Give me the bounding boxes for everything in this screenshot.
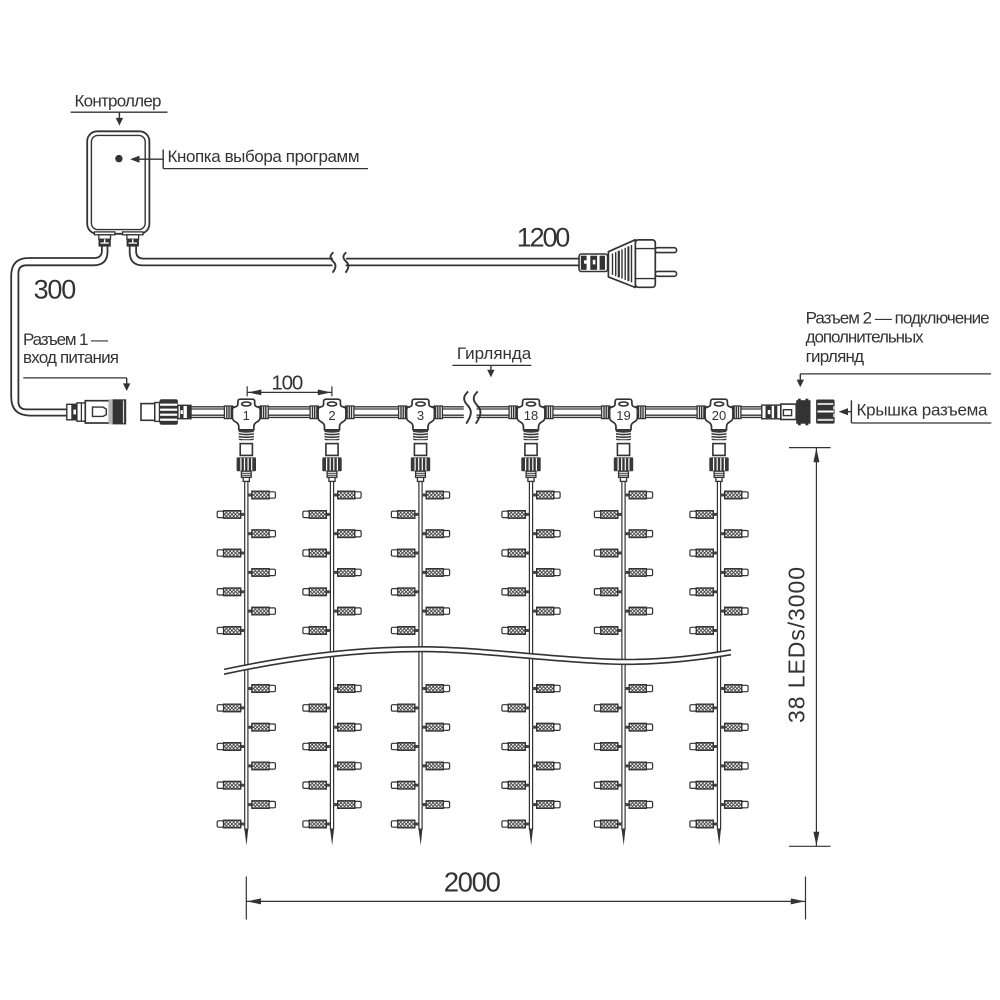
svg-text:гирлянд: гирлянд <box>806 347 865 366</box>
svg-text:Крышка разъема: Крышка разъема <box>857 400 989 419</box>
svg-text:38 LEDs/3000: 38 LEDs/3000 <box>784 567 810 723</box>
svg-text:Контроллер: Контроллер <box>75 91 162 110</box>
svg-text:вход питания: вход питания <box>23 348 119 367</box>
svg-text:100: 100 <box>271 371 303 394</box>
svg-text:19: 19 <box>616 408 630 423</box>
svg-text:3: 3 <box>417 408 424 423</box>
svg-text:дополнительных: дополнительных <box>806 328 925 347</box>
svg-text:1200: 1200 <box>517 223 571 253</box>
svg-text:18: 18 <box>524 408 538 423</box>
svg-text:1: 1 <box>243 408 250 423</box>
svg-text:Разъем 2 — подключение: Разъем 2 — подключение <box>806 309 990 328</box>
svg-text:300: 300 <box>34 275 77 305</box>
svg-text:Гирлянда: Гирлянда <box>457 344 532 363</box>
svg-text:Кнопка выбора программ: Кнопка выбора программ <box>168 147 360 166</box>
svg-text:Разъем 1 —: Разъем 1 — <box>23 330 108 349</box>
svg-text:20: 20 <box>712 408 726 423</box>
svg-text:2: 2 <box>328 408 335 423</box>
svg-text:2000: 2000 <box>444 867 501 898</box>
